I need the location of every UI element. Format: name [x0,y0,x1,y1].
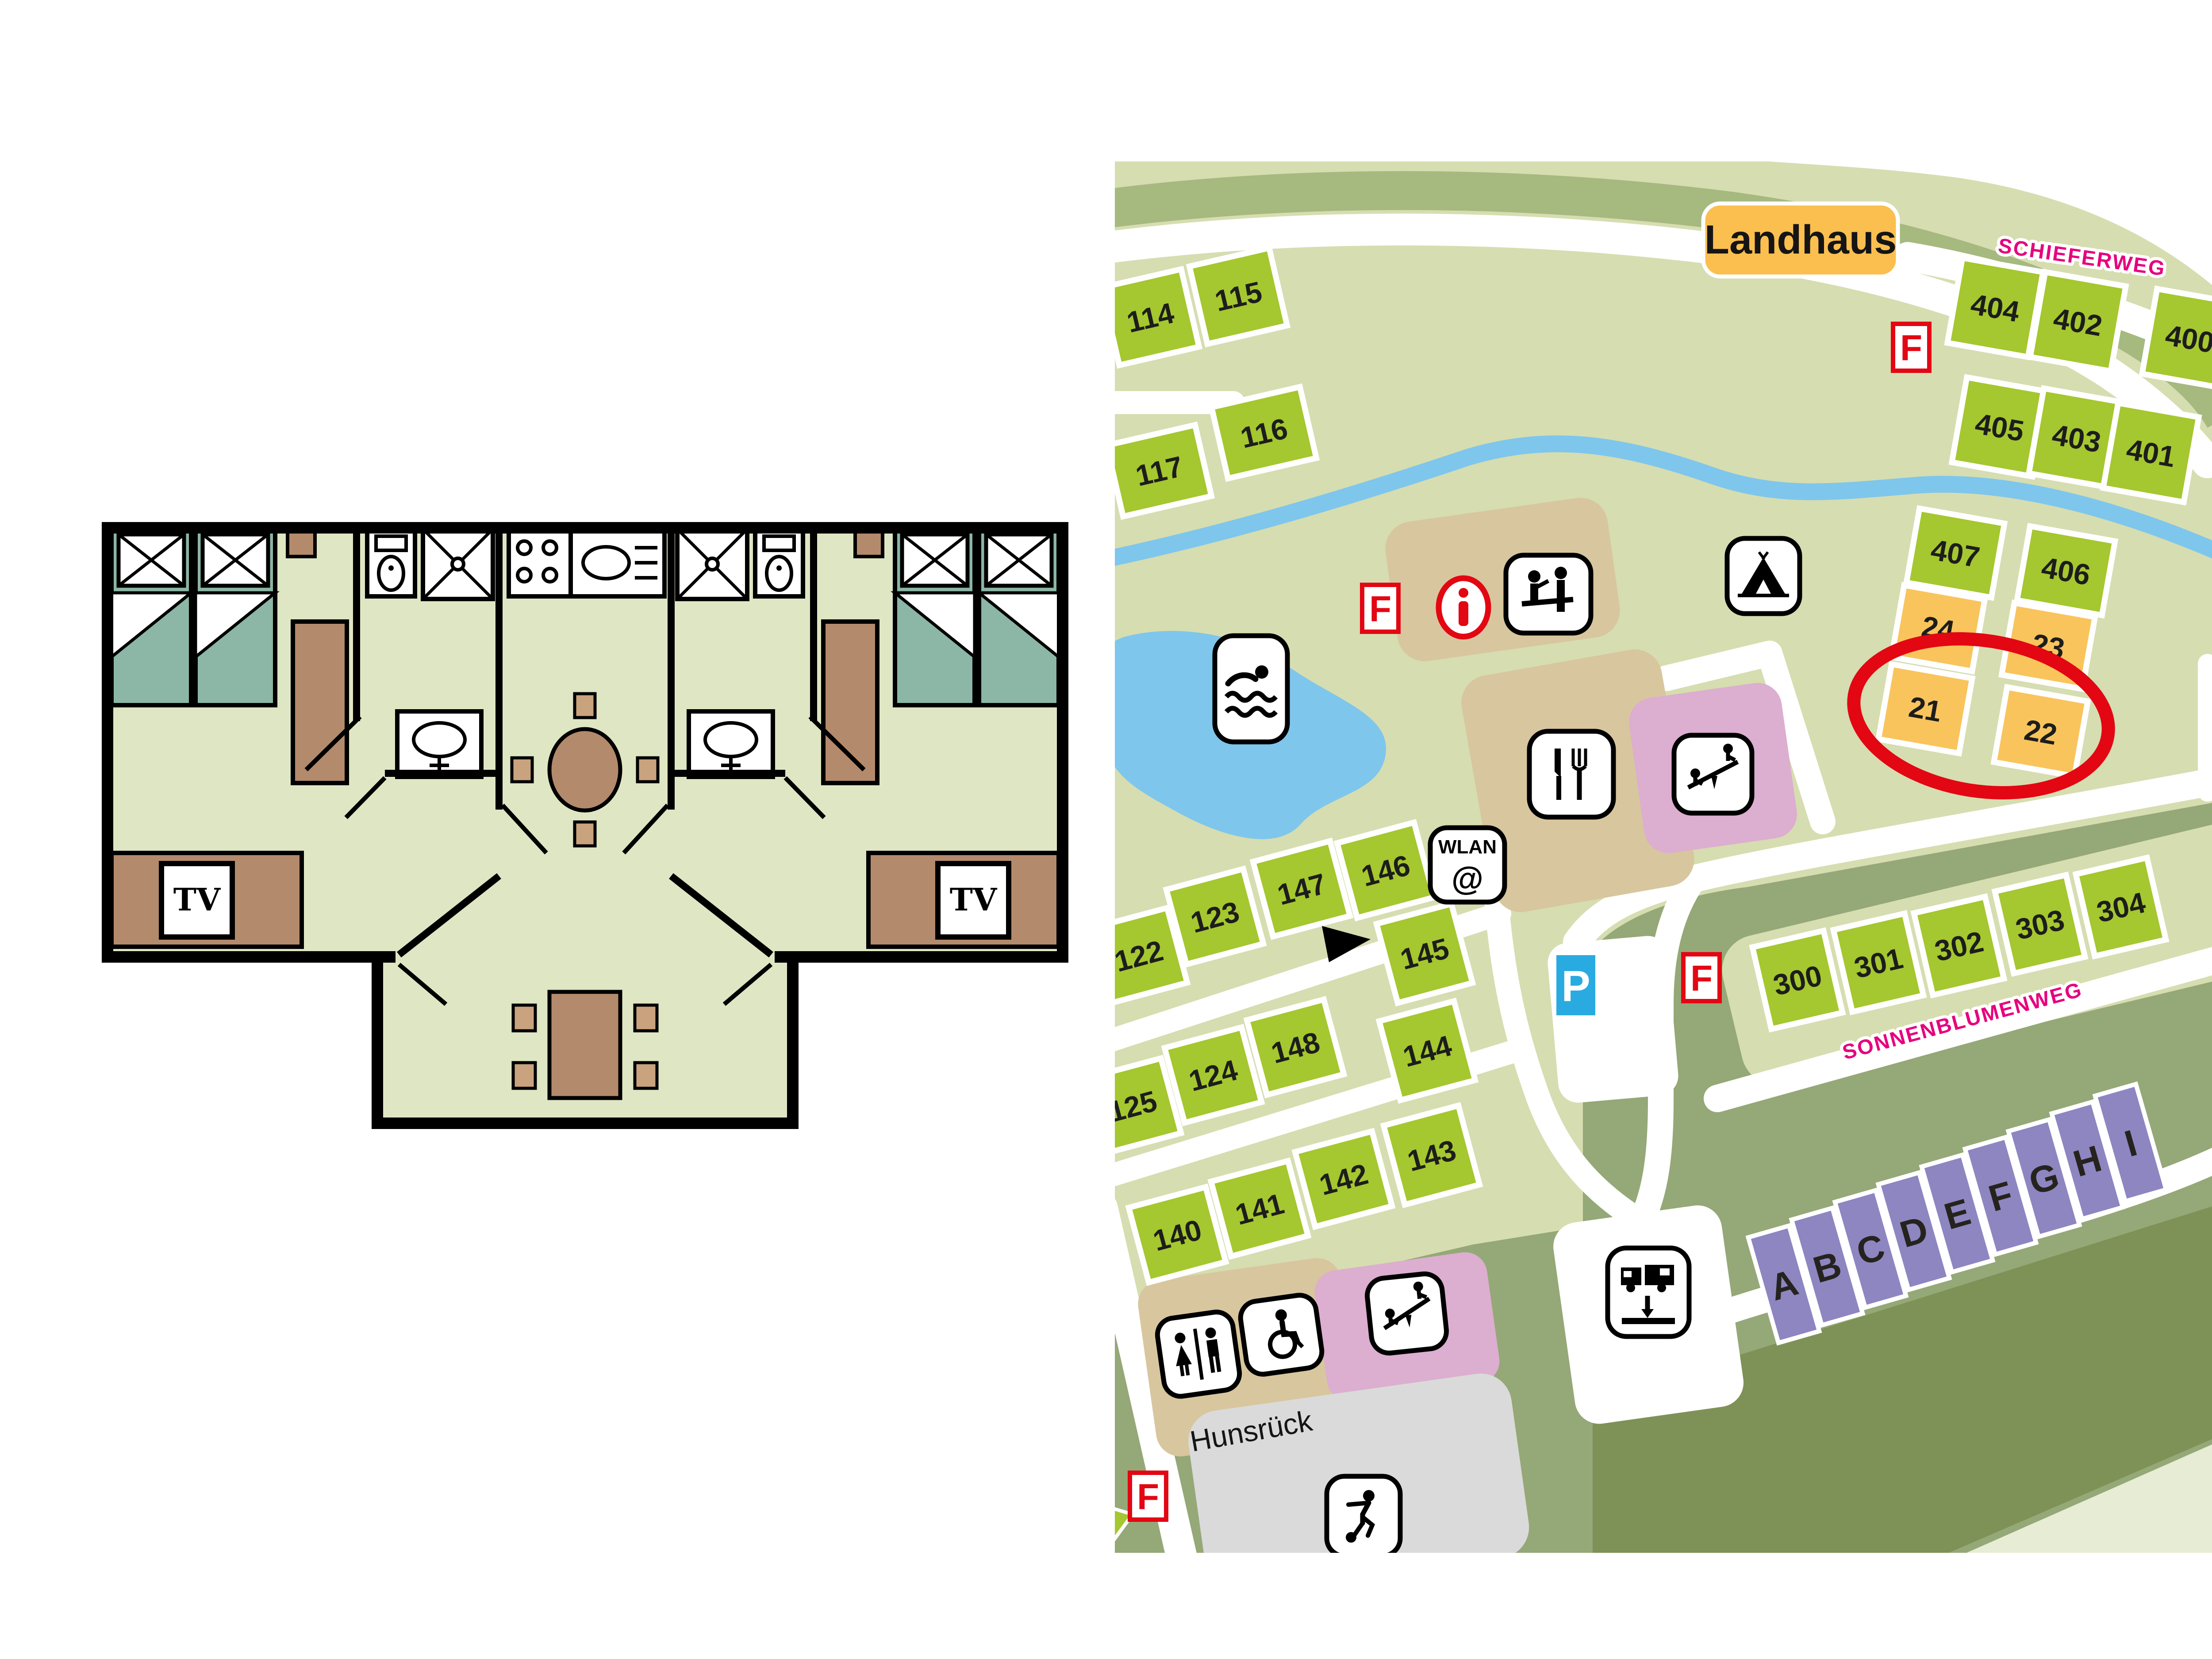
plot-142[interactable]: 142 [1295,1131,1392,1227]
plot-404[interactable]: 404 [1947,258,2043,357]
plot-22[interactable]: 22 [1994,687,2088,776]
toilet-left [367,530,415,596]
plot-24[interactable]: 24 [1892,585,1985,672]
shower-right [677,529,747,599]
plot-304[interactable]: 304 [2076,858,2166,956]
shower-left [423,529,493,599]
svg-text:F: F [1369,589,1391,629]
plot-number: 21 [1906,690,1944,728]
tv-label-right: TV [950,881,998,918]
tv-label-left: TV [173,881,221,918]
bed-left-1 [111,528,191,705]
plot-number: 22 [2022,713,2059,751]
svg-text:Landhaus: Landhaus [1705,217,1897,262]
toilet-right [755,530,803,596]
fire-icon-1: F [1893,324,1929,371]
plot-300[interactable]: 300 [1752,931,1843,1029]
tv-room-left: TV [111,853,302,947]
plot-145[interactable]: 145 [1377,904,1473,1003]
seesaw-icon-1 [1674,735,1752,813]
bed-left-2 [196,528,275,705]
restaurant-icon [1529,731,1613,817]
sink-left [397,711,481,777]
bed-right-2 [895,528,975,705]
plot-401[interactable]: 401 [2103,403,2199,502]
plot-407[interactable]: 407 [1906,508,2005,597]
plot-143[interactable]: 143 [1384,1106,1480,1205]
soccer-icon [1327,1476,1400,1553]
floor-plan: TV TV [102,522,1068,1129]
svg-text:P: P [1561,962,1590,1010]
landhaus-label: Landhaus [1703,204,1898,276]
tv-room-right: TV [868,853,1059,947]
kitchen-counter [571,529,664,596]
plot-114[interactable]: 114 [1115,269,1199,365]
site-map: 1141151161174044024004054034014074063003… [1115,161,2212,1553]
sink-right [689,711,773,777]
seesaw-icon-2 [1366,1272,1448,1355]
plot-124[interactable]: 124 [1164,1027,1261,1123]
plot-303[interactable]: 303 [1995,875,2085,973]
plot-140[interactable]: 140 [1129,1187,1225,1283]
wc-icon [1155,1310,1241,1398]
plot-302[interactable]: 302 [1914,897,2004,995]
plot-406[interactable]: 406 [2017,526,2115,615]
wlan-icon: WLAN @ [1430,828,1505,902]
svg-text:F: F [1137,1477,1159,1517]
plot-21[interactable]: 21 [1878,664,1972,753]
svg-text:WLAN: WLAN [1438,836,1497,858]
fire-icon-2: F [1362,585,1398,632]
plot-148[interactable]: 148 [1247,999,1344,1095]
plot-141[interactable]: 141 [1211,1161,1308,1256]
parking-icon: P [1556,955,1595,1015]
reception-icon [1506,555,1591,633]
plot-144[interactable]: 144 [1379,1001,1475,1100]
fire-icon-4: F [1130,1473,1166,1520]
plot-402[interactable]: 402 [2030,272,2126,371]
wheelchair-icon [1238,1293,1324,1376]
page: TV TV [0,0,2212,1659]
svg-text:F: F [1690,958,1713,998]
caravan-service-icon [1608,1248,1689,1336]
info-icon [1439,578,1488,637]
bed-right-1 [979,528,1059,705]
fire-icon-3: F [1683,954,1720,1001]
tent-icon [1727,538,1800,614]
plot-400[interactable]: 400 [2142,289,2212,388]
plot-115[interactable]: 115 [1190,248,1287,344]
svg-text:@: @ [1452,860,1483,897]
plot-146[interactable]: 146 [1337,822,1434,918]
swimming-icon [1215,636,1287,742]
svg-text:F: F [1900,328,1922,368]
plot-147[interactable]: 147 [1253,841,1350,937]
stove [509,529,571,596]
plot-123[interactable]: 123 [1166,869,1263,964]
plot-301[interactable]: 301 [1833,914,1924,1012]
